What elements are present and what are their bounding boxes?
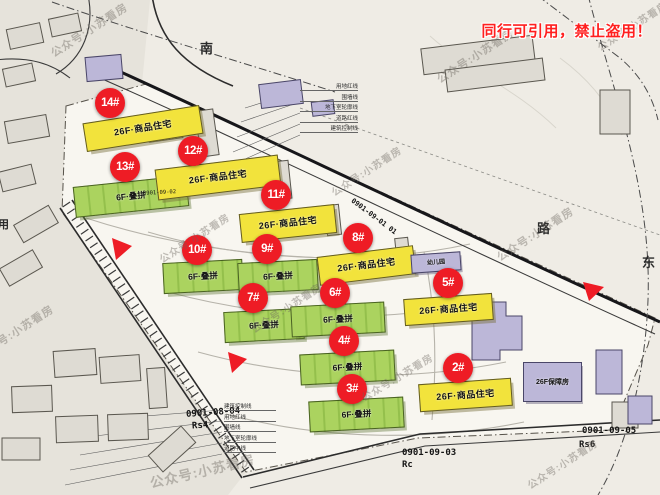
building-3-label: 6F·叠拼 — [341, 409, 371, 419]
legend-item: 地下室轮廓线 — [300, 105, 358, 112]
building-5-badge: 5# — [433, 268, 463, 298]
site-plan-map: 26F·商品住宅 6F·叠拼 26F·商品住宅 26F·商品住宅 6F·叠拼 6… — [0, 0, 660, 495]
building-14-badge: 14# — [95, 88, 125, 118]
legend-item: 建筑控制线 — [224, 404, 276, 411]
street-char-east: 东 — [642, 252, 655, 271]
parcel-zone-rs6: Rs6 — [579, 440, 595, 450]
parcel-zone-rc: Rc — [402, 460, 413, 470]
building-4-badge: 4# — [329, 326, 359, 356]
building-3-badge: 3# — [337, 374, 367, 404]
building-8-badge: 8# — [343, 223, 373, 253]
parcel-code-0901-09-05: 0901-09-05 — [582, 426, 636, 436]
building-14-label: 26F·商品住宅 — [113, 119, 172, 137]
building-11-badge: 11# — [261, 180, 291, 210]
building-11-label: 26F·商品住宅 — [258, 216, 317, 231]
building-7-label: 6F·叠拼 — [249, 320, 279, 330]
building-2-badge: 2# — [443, 353, 473, 383]
welfare-housing: 26F保障房 — [523, 362, 582, 402]
legend-item: 道路中线 — [224, 446, 276, 453]
building-13-label: 6F·叠拼 — [116, 191, 146, 203]
copyright-notice: 同行可引用，禁止盗用！ — [481, 20, 652, 41]
building-9-badge: 9# — [252, 234, 282, 264]
street-char-south: 南 — [200, 38, 213, 57]
street-char-left: 用 — [0, 216, 9, 232]
legend-item: 道路红线 — [300, 116, 358, 123]
building-7-badge: 7# — [238, 283, 268, 313]
kindergarten-label: 幼儿园 — [427, 259, 445, 266]
legend-item: 建筑控制线 — [300, 126, 358, 133]
parcel-code-0901-09-03: 0901-09-03 — [402, 448, 456, 458]
building-6-badge: 6# — [320, 278, 350, 308]
legend-item: 地下室轮廓线 — [224, 436, 276, 443]
parcel-zone-rs4: Rs4 — [192, 420, 209, 431]
street-char-road: 路 — [537, 218, 550, 237]
legend-item: 用地红线 — [224, 415, 276, 422]
building-8-label: 26F·商品住宅 — [337, 257, 396, 273]
building-5-label: 26F·商品住宅 — [419, 303, 478, 316]
building-10: 6F·叠拼 — [162, 259, 244, 294]
building-6-label: 6F·叠拼 — [323, 314, 353, 324]
welfare-housing-label: 26F保障房 — [536, 379, 569, 386]
legend-item: 围墙线 — [300, 95, 358, 102]
building-12-badge: 12# — [178, 136, 208, 166]
building-9-label: 6F·叠拼 — [263, 271, 293, 281]
building-4-label: 6F·叠拼 — [332, 362, 362, 372]
building-10-badge: 10# — [182, 235, 212, 265]
building-10-label: 6F·叠拼 — [188, 271, 218, 281]
building-13-badge: 13# — [110, 152, 140, 182]
building-12-label: 26F·商品住宅 — [188, 169, 247, 185]
building-2-label: 26F·商品住宅 — [436, 388, 495, 401]
legend-item: 围墙线 — [224, 425, 276, 432]
legend-item: 用地红线 — [300, 84, 358, 91]
legend-bottom: 建筑控制线 用地红线 围墙线 地下室轮廓线 道路中线 — [224, 404, 276, 457]
legend-top: 用地红线 围墙线 地下室轮廓线 道路红线 建筑控制线 — [300, 84, 358, 137]
